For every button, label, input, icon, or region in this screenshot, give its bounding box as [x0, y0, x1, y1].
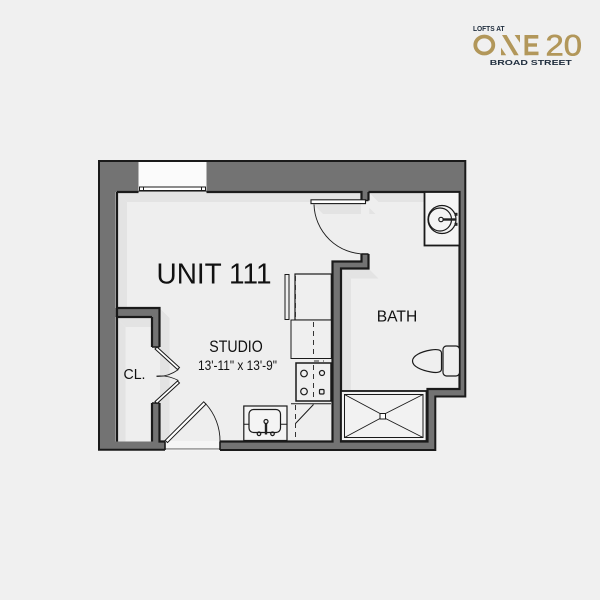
svg-text:BROAD STREET: BROAD STREET	[490, 58, 573, 67]
svg-text:BATH: BATH	[377, 308, 418, 325]
svg-text:LOFTS AT: LOFTS AT	[473, 24, 505, 33]
svg-text:CL.: CL.	[124, 367, 146, 383]
svg-text:STUDIO: STUDIO	[209, 338, 263, 356]
svg-text:13'-11" x 13'-9": 13'-11" x 13'-9"	[198, 357, 277, 373]
svg-text:UNIT 111: UNIT 111	[157, 258, 272, 290]
